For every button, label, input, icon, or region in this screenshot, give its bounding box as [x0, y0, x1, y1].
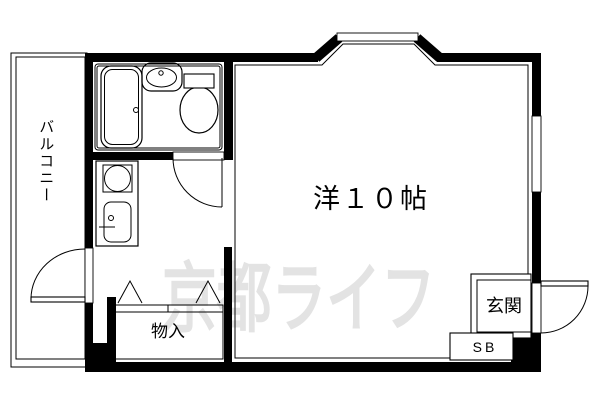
- entrance-label: 玄関: [486, 296, 522, 317]
- main-room-label: 洋１０帖: [313, 184, 429, 215]
- floor-plan: 京都ライフ: [0, 0, 600, 400]
- right-window: [532, 116, 541, 192]
- entrance-door-opening: [532, 283, 541, 333]
- kitchen-unit-icon: [96, 161, 138, 246]
- shoe-box-label: SB: [473, 339, 498, 355]
- bay-window: [337, 33, 418, 41]
- bathroom-door: [173, 158, 222, 207]
- kitchen-sink-icon: [104, 202, 131, 242]
- faucet-icon: [99, 222, 115, 233]
- balcony-door: [31, 249, 85, 302]
- bathtub-icon: [101, 66, 142, 148]
- bay-wall-right: [417, 38, 440, 58]
- bathroom-door-opening: [173, 152, 224, 160]
- bay-wall-left: [316, 38, 339, 58]
- closet-door-mark: [118, 281, 142, 303]
- entrance-door: [541, 281, 588, 333]
- balcony-door-opening: [85, 248, 93, 303]
- balcony-label: バルコニー: [37, 119, 54, 204]
- washbasin-icon: [142, 63, 182, 91]
- toilet-icon: [180, 74, 218, 133]
- closet-label: 物入: [151, 322, 185, 342]
- floor-plan-drawing: [0, 0, 600, 400]
- storage-closet: [113, 281, 223, 359]
- balcony-outline: [11, 53, 87, 367]
- closet-door-mark: [196, 281, 220, 303]
- stove-burner-icon: [103, 165, 132, 192]
